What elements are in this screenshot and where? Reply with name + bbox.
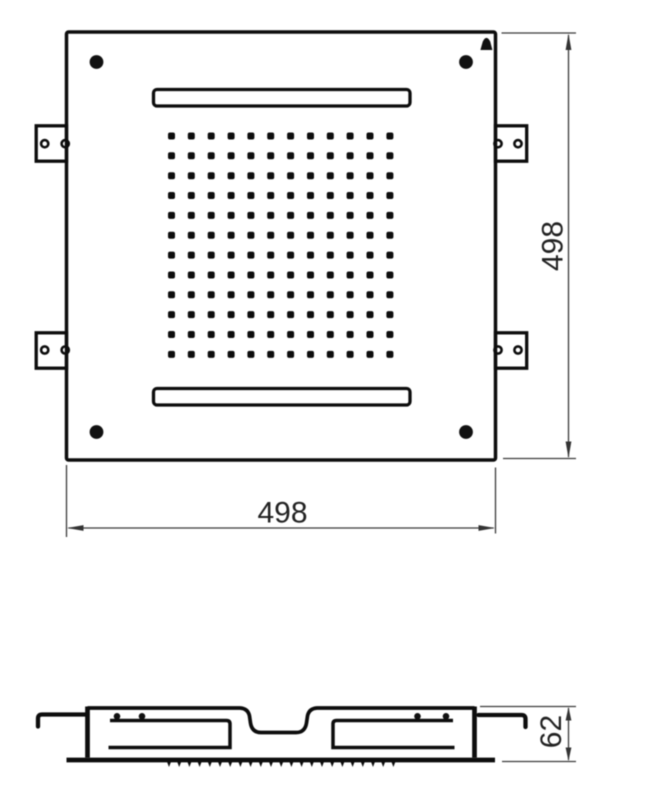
svg-text:498: 498 bbox=[257, 497, 307, 530]
svg-text:498: 498 bbox=[537, 221, 570, 271]
svg-text:62: 62 bbox=[535, 715, 568, 748]
